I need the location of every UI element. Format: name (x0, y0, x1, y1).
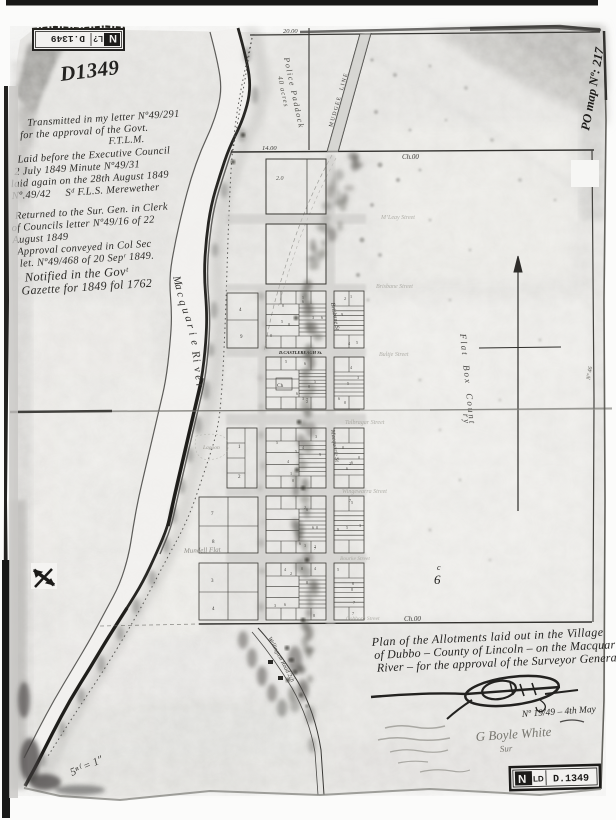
svg-text:6: 6 (434, 572, 441, 587)
svg-text:8: 8 (288, 322, 290, 327)
svg-text:Ch.00: Ch.00 (402, 153, 419, 161)
svg-text:0: 0 (270, 333, 272, 338)
svg-text:F.T.L.M.: F.T.L.M. (107, 134, 145, 147)
svg-text:6: 6 (338, 396, 340, 401)
svg-text:D.CASTLEREAGH St.: D.CASTLEREAGH St. (278, 350, 322, 355)
svg-text:5: 5 (337, 567, 339, 572)
svg-text:6: 6 (296, 391, 298, 396)
svg-text:0: 0 (282, 303, 284, 308)
svg-text:ry: ry (461, 413, 472, 425)
svg-text:7: 7 (353, 600, 355, 605)
svg-text:5: 5 (346, 525, 348, 530)
svg-text:0: 0 (344, 400, 346, 405)
svg-text:Cobbora Street: Cobbora Street (346, 616, 380, 622)
svg-text:9: 9 (341, 312, 343, 317)
svg-text:Mundell Flat: Mundell Flat (183, 546, 222, 555)
svg-text:5: 5 (347, 381, 349, 386)
svg-text:Brisbane Street: Brisbane Street (376, 284, 413, 290)
svg-text:D.1349: D.1349 (50, 33, 85, 44)
svg-text:14.00: 14.00 (262, 145, 277, 152)
svg-text:Lagoon: Lagoon (202, 445, 220, 451)
svg-text:N: N (518, 774, 527, 786)
svg-text:c: c (437, 563, 441, 572)
svg-text:9: 9 (319, 452, 321, 457)
svg-text:5: 5 (314, 379, 316, 384)
svg-text:8: 8 (313, 613, 315, 618)
svg-text:6: 6 (312, 525, 314, 530)
svg-text:5: 5 (351, 500, 353, 505)
svg-text:L?: L? (93, 34, 103, 43)
svg-text:0: 0 (358, 455, 360, 460)
svg-text:8: 8 (306, 580, 308, 585)
svg-text:M’Leay Street: M’Leay Street (380, 215, 415, 221)
svg-text:Ch: Ch (277, 383, 284, 389)
svg-text:LD: LD (533, 774, 544, 783)
svg-text:2: 2 (314, 544, 316, 549)
svg-text:5: 5 (295, 449, 297, 454)
svg-text:Bultje Street: Bultje Street (379, 352, 409, 358)
svg-text:2.0: 2.0 (276, 176, 284, 182)
svg-text:9: 9 (337, 527, 339, 532)
svg-text:6: 6 (304, 361, 306, 366)
svg-text:2: 2 (290, 571, 292, 576)
svg-text:N: N (109, 32, 117, 44)
svg-text:3: 3 (315, 434, 317, 439)
svg-text:2: 2 (344, 296, 346, 301)
svg-text:Wingewarra Street: Wingewarra Street (342, 489, 387, 495)
svg-text:0: 0 (316, 525, 318, 530)
svg-text:3: 3 (274, 603, 276, 608)
svg-text:5: 5 (276, 440, 278, 445)
svg-text:0: 0 (342, 445, 344, 450)
svg-text:2: 2 (349, 461, 351, 466)
svg-text:6: 6 (351, 460, 353, 465)
svg-text:Bourke Street: Bourke Street (340, 556, 370, 562)
svg-text:5: 5 (285, 359, 287, 364)
svg-text:8: 8 (351, 587, 353, 592)
svg-text:6: 6 (346, 466, 348, 471)
svg-text:1: 1 (290, 471, 292, 476)
svg-text:Talbragar Street: Talbragar Street (345, 420, 385, 426)
svg-text:D.1349: D.1349 (553, 774, 589, 786)
svg-text:5: 5 (281, 319, 283, 324)
svg-text:5: 5 (356, 340, 358, 345)
svg-text:Sur: Sur (499, 743, 513, 754)
svg-text:3: 3 (359, 523, 361, 528)
svg-text:3: 3 (357, 375, 359, 380)
svg-text:Ch.00: Ch.00 (404, 615, 421, 623)
svg-text:6: 6 (284, 602, 286, 607)
svg-text:6: 6 (352, 581, 354, 586)
svg-text:1: 1 (350, 294, 352, 299)
svg-text:6: 6 (321, 315, 323, 320)
svg-text:20.00: 20.00 (283, 28, 298, 35)
svg-text:3: 3 (312, 315, 314, 320)
